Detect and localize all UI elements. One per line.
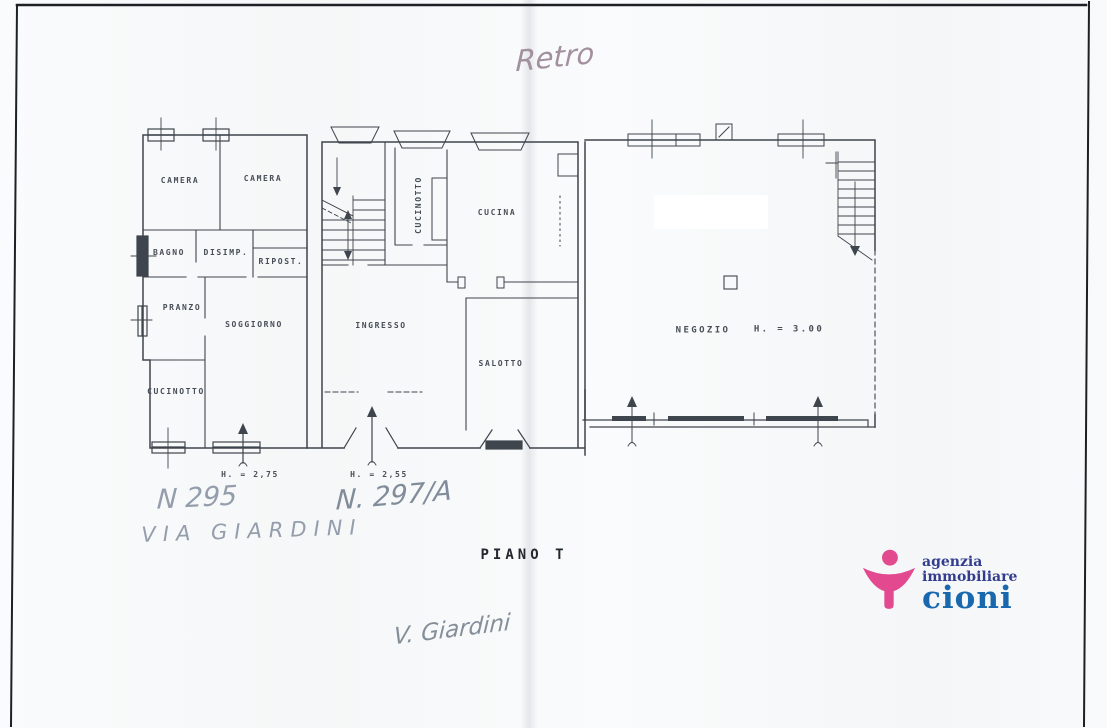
stairs-icon (322, 158, 385, 265)
room-label-disimpegno: DISIMP. (204, 249, 249, 257)
floor-plan-drawing (0, 0, 1107, 728)
plan-title: PIANO T (480, 548, 567, 562)
room-label-ripostiglio: RIPOST. (259, 258, 304, 266)
room-label-camera-1: CAMERA (161, 177, 200, 185)
kitchenette-counter (432, 154, 578, 246)
chimney-flue-symbols (331, 127, 529, 150)
scan-edge-border (11, 2, 1089, 726)
room-label-ingresso: INGRESSO (355, 322, 406, 330)
interior-door-jambs (325, 277, 504, 392)
negozio-top-windows (628, 120, 824, 158)
room-label-cucinotto-left: CUCINOTTO (147, 388, 205, 396)
room-label-salotto: SALOTTO (479, 360, 524, 368)
left-entrance-arrow-icon (238, 423, 248, 466)
center-apartment-walls (307, 142, 585, 455)
room-label-camera-2: CAMERA (244, 175, 283, 183)
room-label-bagno: BAGNO (153, 249, 185, 257)
height-label-negozio: H. = 3.00 (754, 326, 824, 335)
scanned-floor-plan-page: CAMERA CAMERA BAGNO DISIMP. RIPOST. PRAN… (0, 0, 1107, 728)
negozio-stairs-icon (826, 152, 875, 260)
negozio-walls (583, 140, 875, 427)
room-label-pranzo: PRANZO (163, 304, 202, 312)
room-label-cucinotto-center: CUCINOTTO (415, 176, 423, 234)
height-label-left: H. = 2,75 (221, 471, 279, 479)
room-label-cucina: CUCINA (478, 209, 517, 217)
room-label-soggiorno: SOGGIORNO (225, 321, 283, 329)
negozio-storefront (612, 396, 838, 446)
handwritten-street-number-left: N 295 (156, 480, 238, 515)
agency-logo: agenzia immobiliare cioni (862, 547, 1017, 613)
height-label-center: H. = 2,55 (350, 471, 408, 479)
center-entrance-doors (344, 406, 530, 465)
logo-line-cioni: cioni (922, 585, 1017, 613)
cioni-logo-mark-icon (862, 547, 916, 613)
negozio-interior (654, 195, 768, 289)
agency-logo-text: agenzia immobiliare cioni (922, 547, 1017, 613)
room-label-negozio: NEGOZIO (676, 327, 731, 336)
logo-line-agenzia: agenzia (922, 555, 1017, 570)
